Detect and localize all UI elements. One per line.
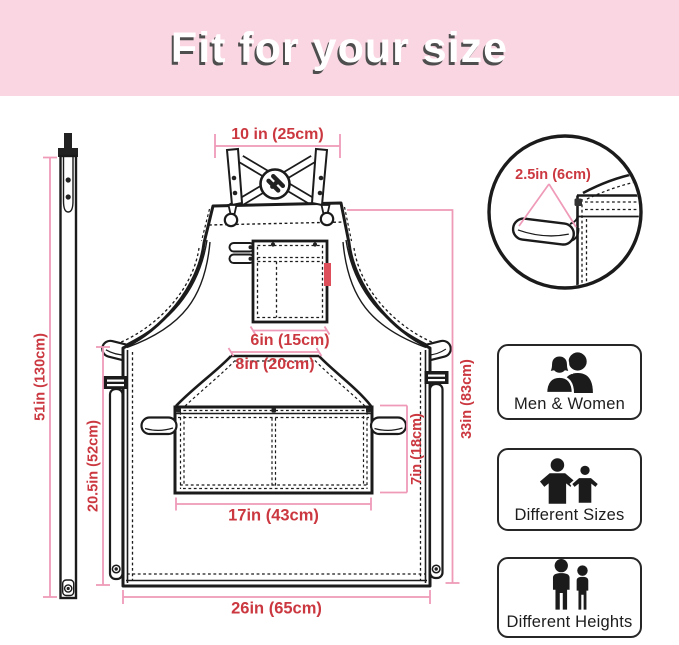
feature-card-different-sizes: Different Sizes bbox=[497, 448, 642, 531]
buckle-icon bbox=[425, 371, 449, 384]
infographic: Fit for your size bbox=[0, 0, 679, 645]
waist-pocket bbox=[142, 407, 407, 493]
dim-waist-pocket-top: 8in (20cm) bbox=[235, 356, 314, 373]
different-heights-icon bbox=[545, 559, 595, 611]
grommet-icon bbox=[225, 214, 237, 226]
feature-card-men-women: Men & Women bbox=[497, 344, 642, 420]
loop-detail-circle: 2.5in (6cm) bbox=[489, 136, 642, 289]
feature-card-different-heights: Different Heights bbox=[497, 557, 642, 638]
men-women-icon bbox=[540, 351, 600, 393]
pocket-tag bbox=[324, 263, 331, 286]
hanging-strap bbox=[58, 133, 78, 598]
different-sizes-icon bbox=[539, 458, 601, 504]
feature-label-different-sizes: Different Sizes bbox=[515, 507, 625, 524]
chest-pocket bbox=[253, 241, 331, 322]
towel-loop-icon bbox=[371, 418, 406, 435]
dim-chest-pocket-width: 6in (15cm) bbox=[250, 332, 329, 349]
feature-label-men-women: Men & Women bbox=[514, 396, 625, 413]
dim-side-height: 20.5in (52cm) bbox=[86, 420, 102, 512]
grommet-icon bbox=[321, 213, 333, 225]
dim-waist-pocket-width: 17in (43cm) bbox=[228, 507, 319, 525]
dim-total-height: 33in (83cm) bbox=[459, 359, 475, 439]
dim-strap-length: 51in (130cm) bbox=[33, 333, 49, 421]
buckle-icon bbox=[104, 376, 128, 389]
dim-top-width: 10 in (25cm) bbox=[231, 126, 323, 143]
apron-diagram: 10 in (25cm) 6in (15cm) 8in (20cm) 17in … bbox=[0, 0, 679, 645]
dim-bottom-width: 26in (65cm) bbox=[231, 600, 322, 618]
feature-label-different-heights: Different Heights bbox=[507, 614, 633, 631]
towel-loop-icon bbox=[142, 418, 177, 435]
dim-waist-pocket-height: 7in (18cm) bbox=[409, 413, 425, 485]
dim-loop-size: 2.5in (6cm) bbox=[515, 167, 591, 183]
